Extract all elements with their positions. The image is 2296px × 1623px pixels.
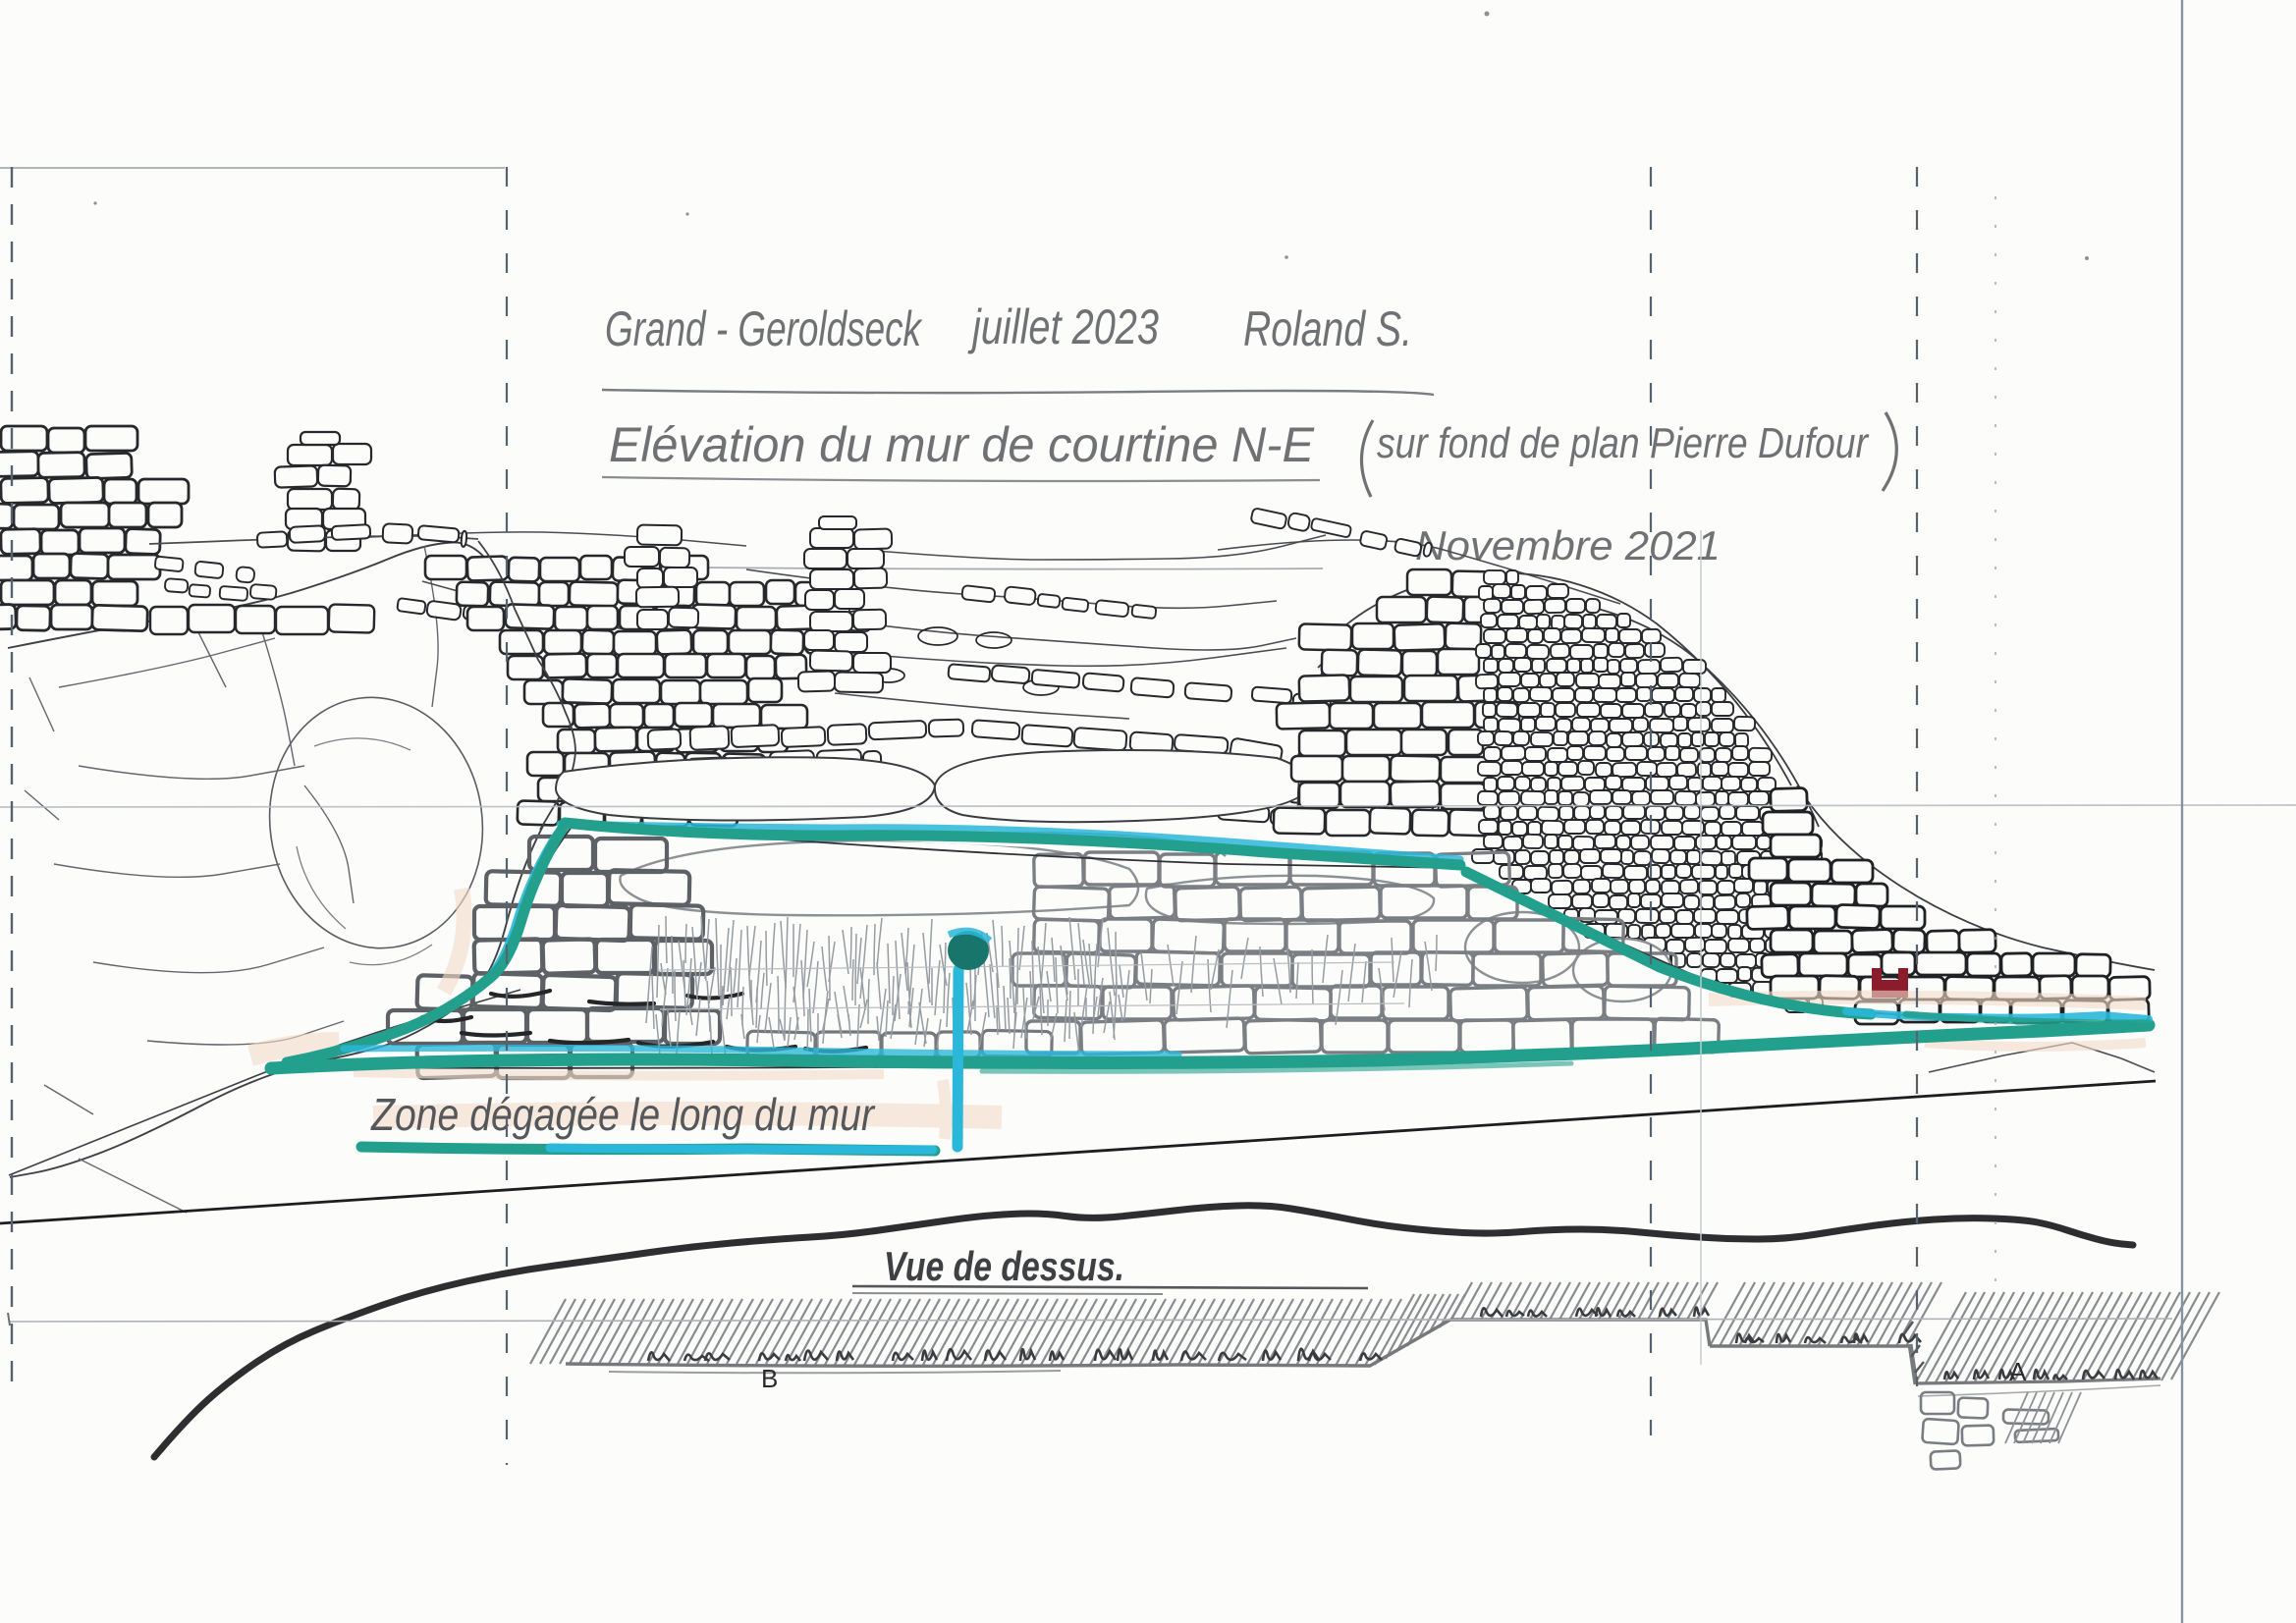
svg-text:sur fond de plan Pierre Dufour: sur fond de plan Pierre Dufour: [1377, 419, 1870, 467]
svg-text:Zone dégagée le long du mur: Zone dégagée le long du mur: [370, 1089, 875, 1140]
svg-text:Grand - Geroldseck: Grand - Geroldseck: [605, 301, 923, 356]
svg-text:juillet 2023: juillet 2023: [967, 299, 1159, 354]
svg-text:Roland S.: Roland S.: [1243, 301, 1412, 356]
svg-text:Novembre 2021: Novembre 2021: [1415, 522, 1721, 568]
svg-text:Vue de dessus.: Vue de dessus.: [884, 1243, 1124, 1289]
svg-text:Elévation du mur de courtine N: Elévation du mur de courtine N-E: [609, 417, 1315, 472]
svg-text:B: B: [761, 1364, 778, 1393]
svg-text:A: A: [2009, 1357, 2027, 1386]
